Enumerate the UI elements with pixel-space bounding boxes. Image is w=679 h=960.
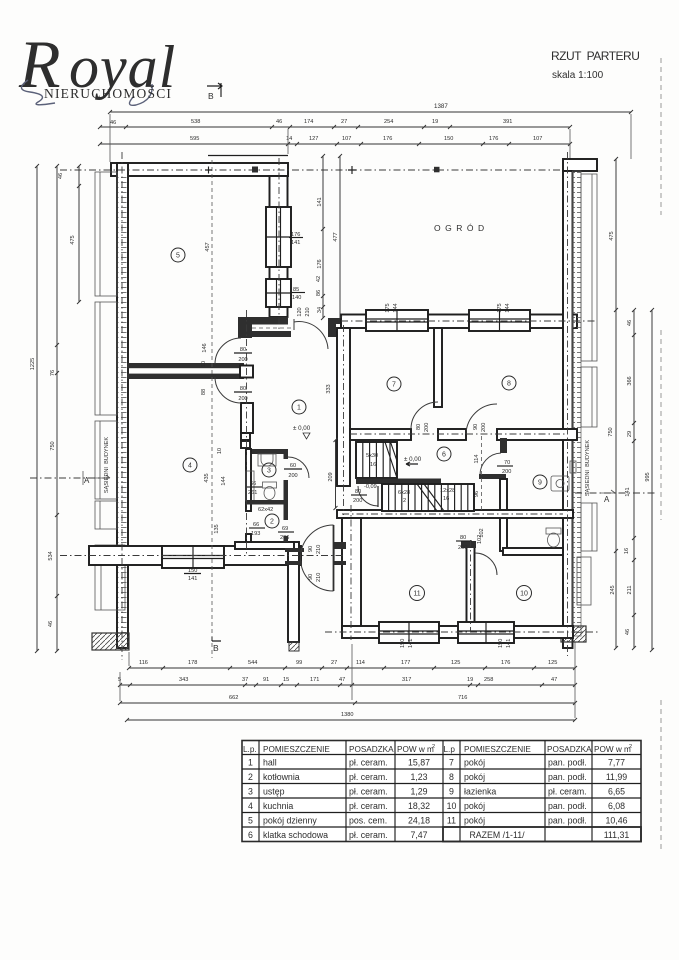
svg-text:141: 141 bbox=[625, 487, 631, 496]
svg-text:716: 716 bbox=[458, 695, 467, 701]
svg-text:8: 8 bbox=[507, 381, 511, 388]
svg-text:kotłownia: kotłownia bbox=[263, 772, 300, 782]
svg-text:177: 177 bbox=[401, 660, 410, 666]
svg-text:457: 457 bbox=[205, 242, 211, 251]
svg-text:6,65: 6,65 bbox=[608, 787, 625, 797]
svg-text:15: 15 bbox=[283, 677, 289, 683]
svg-text:150: 150 bbox=[400, 639, 406, 648]
svg-text:90: 90 bbox=[473, 424, 479, 430]
svg-text:10,46: 10,46 bbox=[605, 816, 627, 826]
svg-text:1,23: 1,23 bbox=[410, 772, 427, 782]
svg-text:46: 46 bbox=[625, 629, 631, 635]
svg-text:19: 19 bbox=[467, 677, 473, 683]
svg-text:261: 261 bbox=[248, 490, 257, 496]
svg-text:27: 27 bbox=[331, 660, 337, 666]
svg-text:141: 141 bbox=[188, 576, 197, 582]
svg-text:141: 141 bbox=[506, 639, 512, 648]
svg-text:SĄSIEDNI BUDYNEK: SĄSIEDNI BUDYNEK bbox=[585, 440, 591, 497]
svg-text:10: 10 bbox=[447, 801, 457, 811]
svg-text:125: 125 bbox=[548, 660, 557, 666]
svg-text:POW w m: POW w m bbox=[397, 745, 434, 754]
svg-text:pokój: pokój bbox=[464, 772, 485, 782]
svg-text:544: 544 bbox=[248, 660, 257, 666]
svg-text:19: 19 bbox=[432, 119, 438, 125]
svg-text:200: 200 bbox=[353, 498, 362, 504]
svg-text:750: 750 bbox=[608, 427, 614, 436]
svg-text:11: 11 bbox=[447, 816, 456, 826]
svg-text:9: 9 bbox=[538, 480, 542, 487]
svg-text:209: 209 bbox=[328, 472, 334, 481]
svg-text:46: 46 bbox=[627, 320, 633, 326]
svg-text:pan. podł.: pan. podł. bbox=[548, 758, 587, 768]
svg-text:2: 2 bbox=[270, 519, 274, 526]
svg-text:176: 176 bbox=[383, 136, 392, 142]
svg-text:pokój dzienny: pokój dzienny bbox=[263, 816, 317, 826]
svg-text:12x28: 12x28 bbox=[440, 488, 455, 494]
svg-text:łazienka: łazienka bbox=[464, 787, 496, 797]
svg-text:7: 7 bbox=[392, 382, 396, 389]
svg-text:144: 144 bbox=[505, 303, 511, 312]
svg-text:80: 80 bbox=[416, 424, 422, 430]
svg-text:66: 66 bbox=[253, 522, 259, 528]
svg-text:127: 127 bbox=[309, 136, 318, 142]
svg-text:141: 141 bbox=[291, 240, 300, 246]
svg-text:46: 46 bbox=[276, 119, 282, 125]
svg-text:6,08: 6,08 bbox=[608, 801, 625, 811]
svg-text:8: 8 bbox=[449, 772, 454, 782]
svg-text:16: 16 bbox=[370, 462, 376, 468]
svg-text:46: 46 bbox=[58, 173, 64, 179]
svg-text:144: 144 bbox=[221, 476, 227, 485]
svg-text:14: 14 bbox=[286, 136, 292, 142]
svg-text:SĄSIEDNI BUDYNEK: SĄSIEDNI BUDYNEK bbox=[104, 437, 110, 494]
svg-text:hall: hall bbox=[263, 758, 277, 768]
svg-text:kuchnia: kuchnia bbox=[263, 801, 293, 811]
svg-text:114: 114 bbox=[356, 660, 365, 666]
svg-text:595: 595 bbox=[190, 136, 199, 142]
svg-text:120: 120 bbox=[297, 307, 303, 316]
svg-text:210: 210 bbox=[305, 307, 311, 316]
svg-text:4: 4 bbox=[188, 463, 192, 470]
svg-text:200: 200 bbox=[424, 423, 430, 432]
svg-text:76: 76 bbox=[50, 370, 56, 376]
svg-text:2: 2 bbox=[248, 772, 253, 782]
svg-text:750: 750 bbox=[50, 441, 56, 450]
svg-text:475: 475 bbox=[609, 231, 615, 240]
svg-text:171: 171 bbox=[310, 677, 319, 683]
svg-text:317: 317 bbox=[402, 677, 411, 683]
svg-text:210: 210 bbox=[316, 545, 322, 554]
svg-text:7,47: 7,47 bbox=[410, 830, 427, 840]
svg-text:10: 10 bbox=[520, 591, 528, 598]
svg-text:80: 80 bbox=[355, 489, 361, 495]
svg-text:pokój: pokój bbox=[464, 758, 485, 768]
svg-text:42: 42 bbox=[316, 276, 322, 282]
svg-text:pł. ceram.: pł. ceram. bbox=[349, 787, 388, 797]
svg-text:18,32: 18,32 bbox=[408, 801, 430, 811]
svg-text:11,99: 11,99 bbox=[606, 772, 627, 782]
svg-text:125: 125 bbox=[451, 660, 460, 666]
svg-text:107: 107 bbox=[342, 136, 351, 142]
svg-text:± 0,00: ± 0,00 bbox=[404, 456, 422, 463]
svg-text:538: 538 bbox=[191, 119, 200, 125]
svg-text:66: 66 bbox=[250, 481, 256, 487]
svg-text:15,87: 15,87 bbox=[408, 758, 430, 768]
svg-text:69: 69 bbox=[282, 526, 288, 532]
svg-text:24,18: 24,18 bbox=[408, 816, 430, 826]
svg-text:200: 200 bbox=[481, 423, 487, 432]
svg-text:141: 141 bbox=[317, 197, 323, 206]
svg-text:RZUT PARTERU: RZUT PARTERU bbox=[551, 49, 639, 63]
svg-text:80: 80 bbox=[460, 535, 466, 541]
svg-text:200: 200 bbox=[502, 469, 511, 475]
svg-text:46: 46 bbox=[110, 120, 116, 126]
svg-text:88: 88 bbox=[201, 389, 207, 395]
svg-text:258: 258 bbox=[484, 677, 493, 683]
svg-text:62x42: 62x42 bbox=[258, 507, 273, 513]
svg-text:POSADZKA: POSADZKA bbox=[547, 745, 592, 754]
svg-text:5: 5 bbox=[176, 253, 180, 260]
svg-text:16: 16 bbox=[443, 496, 449, 502]
svg-text:141: 141 bbox=[408, 639, 414, 648]
svg-text:176: 176 bbox=[489, 136, 498, 142]
svg-text:176: 176 bbox=[317, 259, 323, 268]
svg-text:9: 9 bbox=[449, 787, 454, 797]
svg-text:5: 5 bbox=[248, 816, 253, 826]
svg-text:POMIESZCZENIE: POMIESZCZENIE bbox=[263, 745, 330, 754]
svg-text:pan. podł.: pan. podł. bbox=[548, 801, 587, 811]
svg-text:1387: 1387 bbox=[434, 103, 448, 110]
svg-text:6x28: 6x28 bbox=[398, 490, 410, 496]
svg-text:70: 70 bbox=[504, 460, 510, 466]
svg-text:7,77: 7,77 bbox=[608, 758, 625, 768]
svg-text:47: 47 bbox=[551, 677, 557, 683]
svg-text:pos. cem.: pos. cem. bbox=[349, 816, 387, 826]
svg-text:pł. ceram.: pł. ceram. bbox=[349, 772, 388, 782]
svg-text:200: 200 bbox=[288, 473, 297, 479]
svg-text:pokój: pokój bbox=[464, 816, 485, 826]
svg-text:391: 391 bbox=[503, 119, 512, 125]
svg-text:29: 29 bbox=[627, 431, 633, 437]
svg-text:206: 206 bbox=[280, 535, 289, 541]
svg-text:1: 1 bbox=[248, 758, 253, 768]
svg-text:1225: 1225 bbox=[30, 358, 36, 370]
svg-text:245: 245 bbox=[610, 585, 616, 594]
svg-text:34: 34 bbox=[317, 307, 323, 313]
svg-text:27: 27 bbox=[341, 119, 347, 125]
svg-text:193: 193 bbox=[251, 531, 260, 537]
svg-text:254: 254 bbox=[384, 119, 393, 125]
svg-text:477: 477 bbox=[333, 232, 339, 241]
svg-text:pokój: pokój bbox=[464, 801, 485, 811]
svg-text:16: 16 bbox=[624, 548, 630, 554]
svg-text:211: 211 bbox=[627, 586, 633, 595]
svg-text:3: 3 bbox=[267, 468, 271, 475]
svg-text:4: 4 bbox=[248, 801, 253, 811]
svg-text:140: 140 bbox=[292, 295, 301, 301]
svg-text:90: 90 bbox=[308, 574, 314, 580]
svg-text:6: 6 bbox=[442, 452, 446, 459]
svg-text:POSADZKA: POSADZKA bbox=[349, 745, 394, 754]
svg-text:2: 2 bbox=[432, 744, 435, 750]
svg-text:107: 107 bbox=[533, 136, 542, 142]
svg-text:ustęp: ustęp bbox=[263, 787, 285, 797]
svg-text:102: 102 bbox=[479, 528, 485, 537]
svg-text:-0,09: -0,09 bbox=[364, 484, 377, 490]
svg-text:150: 150 bbox=[498, 639, 504, 648]
svg-text:343: 343 bbox=[179, 677, 188, 683]
svg-text:pł. ceram.: pł. ceram. bbox=[349, 758, 388, 768]
svg-text:L.p.: L.p. bbox=[243, 745, 257, 754]
svg-text:47: 47 bbox=[339, 677, 345, 683]
svg-text:80: 80 bbox=[240, 386, 246, 392]
svg-text:pł. ceram.: pł. ceram. bbox=[349, 830, 388, 840]
svg-text:pan. podł.: pan. podł. bbox=[548, 816, 587, 826]
svg-text:210: 210 bbox=[316, 573, 322, 582]
svg-text:91: 91 bbox=[263, 677, 269, 683]
svg-text:2: 2 bbox=[403, 498, 406, 504]
svg-text:10: 10 bbox=[217, 448, 223, 454]
svg-text:146: 146 bbox=[202, 343, 208, 352]
svg-text:1,29: 1,29 bbox=[410, 787, 427, 797]
svg-text:99: 99 bbox=[296, 660, 302, 666]
svg-text:366: 366 bbox=[627, 376, 633, 385]
svg-text:60: 60 bbox=[290, 463, 296, 469]
svg-text:175: 175 bbox=[385, 303, 391, 312]
svg-text:46: 46 bbox=[48, 621, 54, 627]
svg-text:435: 435 bbox=[204, 473, 210, 482]
svg-text:± 0,00: ± 0,00 bbox=[293, 425, 311, 432]
svg-text:A: A bbox=[604, 495, 610, 504]
svg-text:96: 96 bbox=[474, 491, 480, 497]
svg-text:B: B bbox=[208, 91, 214, 101]
svg-text:111,31: 111,31 bbox=[604, 830, 630, 840]
svg-text:37: 37 bbox=[242, 677, 248, 683]
svg-text:POW w m: POW w m bbox=[594, 745, 631, 754]
svg-text:175: 175 bbox=[497, 303, 503, 312]
svg-text:pł. ceram.: pł. ceram. bbox=[349, 801, 388, 811]
svg-text:skala 1:100: skala 1:100 bbox=[552, 70, 604, 81]
svg-text:5: 5 bbox=[118, 677, 121, 683]
svg-text:5x30: 5x30 bbox=[366, 453, 378, 459]
svg-text:3: 3 bbox=[248, 787, 253, 797]
svg-text:OGRÓD: OGRÓD bbox=[434, 223, 489, 233]
svg-text:6: 6 bbox=[248, 830, 253, 840]
svg-text:10: 10 bbox=[201, 361, 207, 367]
svg-text:80: 80 bbox=[240, 347, 246, 353]
svg-text:534: 534 bbox=[48, 551, 54, 560]
svg-text:1: 1 bbox=[297, 405, 301, 412]
svg-text:176: 176 bbox=[501, 660, 510, 666]
svg-text:333: 333 bbox=[326, 384, 332, 393]
svg-text:135: 135 bbox=[214, 524, 220, 533]
svg-text:pan. podł.: pan. podł. bbox=[548, 772, 587, 782]
svg-text:B: B bbox=[213, 643, 219, 653]
svg-text:pł. ceram.: pł. ceram. bbox=[548, 787, 587, 797]
svg-text:2: 2 bbox=[629, 744, 632, 750]
svg-text:144: 144 bbox=[393, 303, 399, 312]
svg-text:200: 200 bbox=[458, 545, 467, 551]
svg-text:995: 995 bbox=[645, 472, 651, 481]
svg-text:475: 475 bbox=[70, 235, 76, 244]
svg-text:11: 11 bbox=[413, 591, 420, 598]
svg-text:90: 90 bbox=[308, 546, 314, 552]
svg-text:178: 178 bbox=[188, 660, 197, 666]
svg-text:1380: 1380 bbox=[341, 712, 353, 718]
svg-text:114: 114 bbox=[474, 455, 480, 464]
svg-text:POMIESZCZENIE: POMIESZCZENIE bbox=[464, 745, 531, 754]
svg-text:662: 662 bbox=[229, 695, 238, 701]
svg-text:NIERUCHOMOŚCI: NIERUCHOMOŚCI bbox=[44, 86, 172, 101]
svg-text:116: 116 bbox=[139, 660, 148, 666]
svg-text:RAZEM /1-11/: RAZEM /1-11/ bbox=[469, 830, 525, 840]
svg-text:174: 174 bbox=[304, 119, 313, 125]
svg-text:7: 7 bbox=[449, 758, 454, 768]
svg-text:klatka schodowa: klatka schodowa bbox=[263, 830, 328, 840]
svg-text:86: 86 bbox=[316, 290, 322, 296]
svg-text:A: A bbox=[84, 476, 90, 485]
svg-text:150: 150 bbox=[444, 136, 453, 142]
svg-text:L.p: L.p bbox=[444, 745, 456, 754]
